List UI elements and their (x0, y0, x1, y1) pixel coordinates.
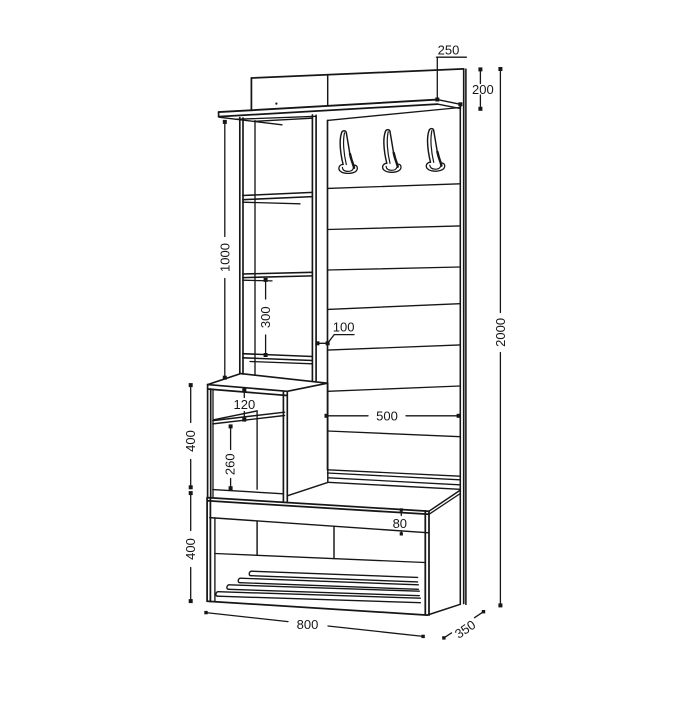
svg-text:200: 200 (472, 82, 494, 97)
svg-text:400: 400 (183, 430, 198, 452)
svg-text:500: 500 (376, 408, 398, 423)
svg-text:800: 800 (297, 617, 319, 632)
svg-text:300: 300 (258, 306, 273, 328)
svg-text:120: 120 (234, 397, 256, 412)
svg-text:80: 80 (393, 516, 407, 531)
svg-text:2000: 2000 (493, 318, 508, 347)
svg-text:100: 100 (333, 320, 355, 335)
svg-text:400: 400 (183, 538, 198, 560)
svg-text:1000: 1000 (218, 243, 233, 272)
svg-text:260: 260 (222, 453, 237, 475)
svg-text:250: 250 (438, 43, 460, 58)
